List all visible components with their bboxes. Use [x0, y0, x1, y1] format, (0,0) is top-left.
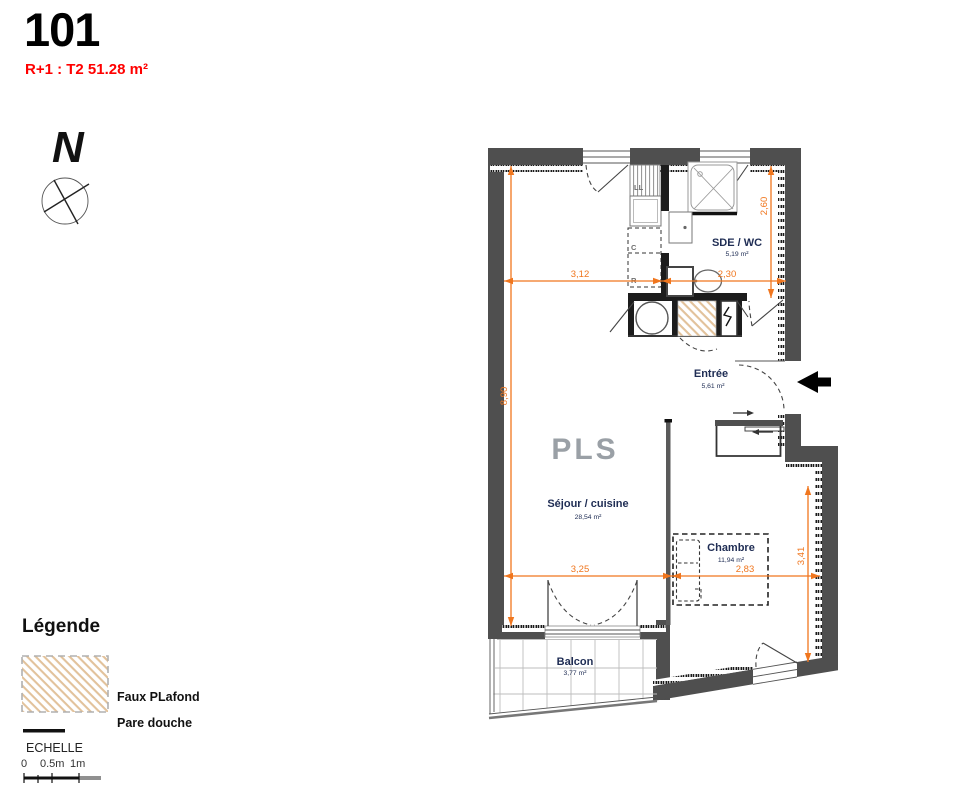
north-arrow: N	[42, 123, 89, 224]
washer-label: LL	[634, 183, 644, 192]
chambre-window	[753, 643, 797, 684]
room-label-sde-wc: SDE / WC	[712, 237, 762, 249]
dimension-chambre-height: 3,41	[796, 547, 807, 566]
slide-right-arrow-icon	[747, 410, 754, 416]
entrance-door	[735, 361, 831, 409]
entry-direction-arrow-icon	[797, 371, 831, 393]
scale-bar	[24, 773, 101, 783]
room-label-balcon: Balcon	[557, 656, 594, 668]
floor-plan-drawing: N	[0, 0, 978, 800]
dimension-sde-height: 2,60	[759, 197, 770, 216]
dimension-sde-width: 2,30	[718, 269, 737, 280]
scale-tick-0: 0	[21, 758, 27, 770]
scale-tick-05: 0.5m	[40, 758, 64, 770]
room-area-chambre: 11,94 m²	[718, 557, 745, 564]
dimension-chambre-width: 2,83	[736, 564, 755, 575]
legend-faux-plafond-label: Faux PLafond	[117, 690, 200, 704]
washbasin	[669, 212, 692, 243]
faux-plafond-area	[678, 301, 716, 336]
dimension-sejour-width-top: 3,12	[571, 269, 590, 280]
chambre-partition	[665, 410, 785, 625]
floor-plan-page: 101 R+1 : T2 51.28 m² N	[0, 0, 978, 800]
room-area-sejour: 28,54 m²	[575, 514, 603, 521]
cupboard-label: C	[631, 243, 637, 252]
room-label-sejour: Séjour / cuisine	[547, 498, 628, 510]
balcony	[489, 580, 657, 718]
legend-faux-plafond-swatch	[22, 656, 108, 712]
kitchen-units: LL C R	[628, 165, 661, 287]
north-label: N	[52, 123, 85, 172]
sde-door	[749, 300, 783, 326]
sliding-door-panel	[745, 427, 784, 431]
scale-tick-1: 1m	[70, 758, 85, 770]
shower	[687, 162, 737, 214]
room-area-entree: 5,61 m²	[701, 383, 725, 390]
window-sejour-top	[583, 147, 630, 192]
room-label-chambre: Chambre	[707, 542, 755, 554]
room-area-balcon: 3,77 m²	[563, 670, 587, 677]
dimension-sejour-height: 8,90	[499, 387, 510, 406]
kitchen-sink-unit	[630, 196, 661, 226]
legend-title: Légende	[22, 616, 100, 638]
dimension-sejour-width-bottom: 3,25	[571, 564, 590, 575]
room-label-entree: Entrée	[694, 368, 728, 380]
room-area-sde-wc: 5,19 m²	[725, 251, 749, 258]
legend-graphics	[22, 656, 108, 783]
water-heater	[636, 302, 668, 334]
watermark-pls: PLS	[551, 433, 618, 466]
electrical-closet	[721, 301, 737, 336]
scale-label: ECHELLE	[26, 741, 83, 755]
legend-pare-douche-swatch	[23, 729, 65, 733]
balcony-door-threshold	[545, 626, 640, 637]
exterior-walls	[488, 148, 838, 701]
bed	[677, 540, 700, 601]
legend-pare-douche-label: Pare douche	[117, 716, 192, 730]
